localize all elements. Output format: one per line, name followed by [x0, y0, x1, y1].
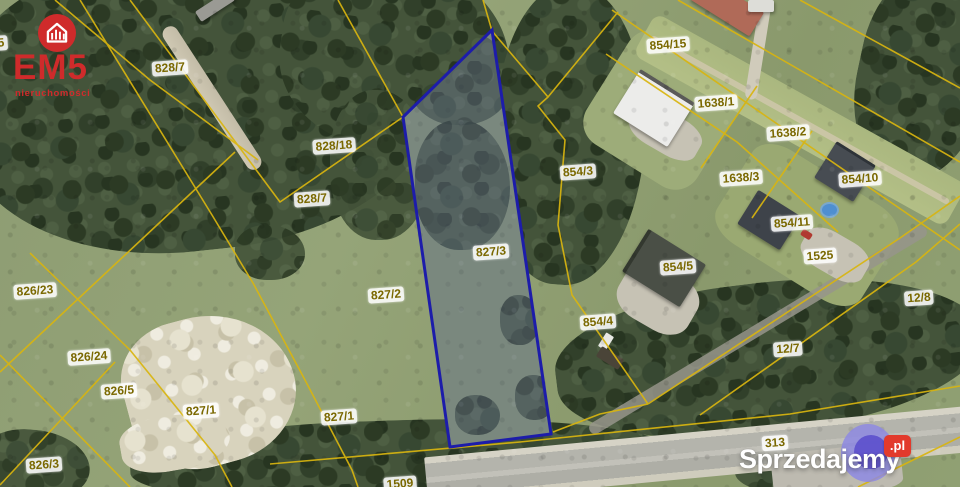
sprzedajemy-watermark: Sprzedajemy .pl — [700, 397, 960, 487]
watermark-pl-badge: .pl — [884, 435, 911, 457]
parcel-label-1509: 1509 — [383, 475, 417, 487]
parcel-label-1638-1: 1638/1 — [694, 94, 738, 112]
parcel-label-854-11: 854/11 — [771, 214, 814, 232]
parcel-label-854-4: 854/4 — [580, 313, 617, 330]
parcel-label-826-24: 826/24 — [67, 348, 111, 366]
parcel-label-1525: 1525 — [803, 247, 837, 264]
parcel-label-827-1: 827/1 — [183, 402, 220, 419]
parcel-label-828-7: 828/7 — [152, 59, 189, 76]
parcel-label-12-8: 12/8 — [904, 289, 934, 306]
aerial-parcel-map: 5828/7854/151638/11638/2828/18854/31638/… — [0, 0, 960, 487]
parcel-label-826-23: 826/23 — [13, 282, 57, 300]
parcel-label-854-5: 854/5 — [660, 258, 697, 275]
parcel-label-828-18: 828/18 — [312, 137, 356, 155]
parcel-label-1638-2: 1638/2 — [766, 124, 810, 142]
parcel-label-1638-3: 1638/3 — [719, 169, 763, 187]
parcel-label-12-7: 12/7 — [773, 340, 803, 357]
logo-tagline: nieruchomości — [15, 88, 90, 99]
em5-logo: EM5 nieruchomości — [0, 0, 120, 110]
parcel-label-827-1: 827/1 — [321, 408, 358, 425]
parcel-label-854-10: 854/10 — [838, 170, 882, 188]
house-icon — [38, 14, 76, 52]
parcel-label-827-2: 827/2 — [368, 286, 405, 303]
parcel-label-828-7: 828/7 — [294, 190, 331, 207]
parcel-label-826-5: 826/5 — [101, 382, 138, 399]
parcel-label-827-3: 827/3 — [473, 243, 510, 260]
parcel-label-854-15: 854/15 — [646, 36, 690, 54]
parcel-label-854-3: 854/3 — [560, 163, 597, 180]
parcel-label-826-3: 826/3 — [26, 456, 63, 473]
watermark-site-name: Sprzedajemy — [739, 446, 900, 473]
logo-name: EM5 — [13, 50, 88, 85]
